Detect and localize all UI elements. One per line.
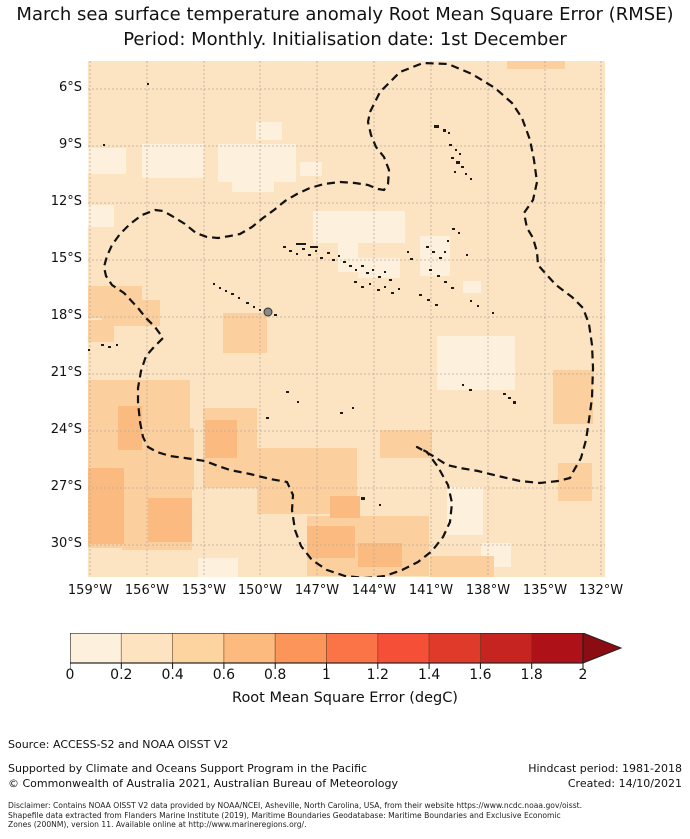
rmse-patch — [358, 543, 402, 567]
island-speck — [286, 391, 289, 393]
island-speck — [369, 283, 371, 285]
island-speck — [302, 248, 305, 250]
island-speck — [320, 257, 323, 259]
colorbar-tick-label: 0.8 — [264, 667, 286, 683]
colorbar-tick-label: 0.2 — [110, 667, 132, 683]
colorbar-segment — [378, 633, 429, 663]
rmse-patch — [148, 498, 192, 542]
colorbar-tick-label: 1 — [322, 667, 331, 683]
island-speck — [377, 289, 380, 291]
island-speck — [508, 397, 511, 399]
rmse-patch — [218, 144, 296, 182]
colorbar-tick-label: 0.4 — [161, 667, 183, 683]
island-speck — [327, 252, 330, 254]
rmse-patch — [313, 211, 405, 243]
island-speck — [231, 293, 234, 295]
rmse-patch — [88, 320, 114, 342]
rmse-patch — [430, 556, 494, 577]
colorbar-segment — [121, 633, 172, 663]
island-speck — [259, 309, 261, 311]
disclaimer-line: Disclaimer: Contains NOAA OISST V2 data … — [8, 801, 582, 811]
island-speck — [308, 254, 311, 256]
island-speck — [219, 287, 221, 289]
island-speck — [355, 269, 357, 271]
colorbar-segment — [480, 633, 531, 663]
island-speck — [434, 125, 439, 128]
x-tick-label: 147°W — [295, 583, 339, 598]
island-speck — [253, 306, 255, 308]
island-speck — [449, 144, 452, 146]
island-speck — [378, 276, 381, 278]
island-speck — [439, 257, 442, 259]
island-speck — [419, 294, 422, 296]
island-speck — [452, 228, 455, 230]
colorbar-tick-label: 2 — [579, 667, 588, 683]
island-speck — [116, 344, 118, 346]
y-tick-label: 18°S — [0, 308, 82, 323]
island-speck — [361, 497, 365, 500]
island-speck — [332, 259, 335, 261]
x-tick-label: 135°W — [523, 583, 567, 598]
island-speck — [437, 275, 440, 277]
colorbar-segment — [429, 633, 480, 663]
island-speck — [513, 401, 516, 404]
island-speck — [465, 173, 467, 175]
island-speck — [372, 269, 374, 271]
island-speck — [296, 243, 306, 245]
x-tick-label: 138°W — [466, 583, 510, 598]
island-speck — [310, 246, 318, 248]
disclaimer-line: Shapefile data extracted from Flanders M… — [8, 811, 582, 821]
hindcast-period-text: Hindcast period: 1981-2018 — [528, 762, 682, 775]
y-tick-label: 12°S — [0, 194, 82, 209]
colorbar-tick-label: 1.2 — [367, 667, 389, 683]
island-speck — [147, 83, 149, 85]
created-date-text: Created: 14/10/2021 — [568, 777, 682, 790]
island-speck — [427, 299, 430, 301]
island-speck — [432, 251, 435, 253]
island-speck — [225, 290, 227, 292]
map-canvas — [88, 61, 605, 577]
island-speck — [410, 258, 413, 260]
island-speck — [384, 271, 386, 273]
island-speck — [349, 265, 352, 267]
x-tick-label: 132°W — [579, 583, 623, 598]
island-speck — [444, 281, 447, 283]
x-tick-label: 153°W — [182, 583, 226, 598]
x-tick-label: 156°W — [125, 583, 169, 598]
colorbar-segment — [275, 633, 326, 663]
colorbar-segment — [327, 633, 378, 663]
colorbar-segment — [224, 633, 275, 663]
y-tick-label: 15°S — [0, 251, 82, 266]
rmse-patch — [553, 370, 593, 424]
disclaimer-text: Disclaimer: Contains NOAA OISST V2 data … — [8, 801, 582, 830]
rmse-patch — [142, 144, 204, 178]
island-speck — [88, 349, 90, 351]
rmse-patch — [232, 180, 274, 192]
disclaimer-line: Zones (200NM), version 11. Available onl… — [8, 820, 582, 830]
island-speck — [366, 272, 369, 274]
island-speck — [466, 254, 468, 256]
colorbar-segment — [173, 633, 224, 663]
island-speck — [456, 161, 460, 164]
island-speck — [451, 287, 454, 289]
island-speck — [444, 251, 446, 253]
island-speck — [492, 312, 494, 314]
rmse-patch — [307, 526, 355, 558]
island-speck — [297, 401, 299, 403]
rmse-patch — [88, 148, 126, 174]
figure-title-line-2: Period: Monthly. Initialisation date: 1s… — [123, 29, 567, 50]
island-speck — [352, 407, 354, 409]
colorbar-label: Root Mean Square Error (degC) — [232, 690, 458, 706]
tahiti-island — [264, 308, 272, 316]
island-speck — [238, 297, 240, 299]
island-speck — [503, 393, 506, 395]
rmse-patch — [88, 205, 114, 227]
x-tick-label: 141°W — [409, 583, 453, 598]
island-speck — [340, 412, 343, 414]
island-speck — [246, 302, 249, 304]
rmse-patch — [380, 430, 432, 458]
island-speck — [407, 251, 409, 253]
island-speck — [391, 292, 394, 294]
rmse-patch — [463, 281, 481, 293]
island-speck — [274, 314, 277, 316]
island-speck — [266, 417, 269, 419]
island-speck — [461, 166, 464, 168]
island-speck — [469, 389, 472, 391]
island-speck — [361, 286, 364, 288]
y-tick-label: 24°S — [0, 422, 82, 437]
x-tick-label: 159°W — [68, 583, 112, 598]
island-speck — [289, 250, 292, 252]
island-speck — [426, 246, 429, 248]
island-speck — [354, 281, 357, 283]
rmse-patch — [420, 236, 450, 276]
island-speck — [451, 157, 454, 159]
colorbar-over-arrow — [583, 633, 621, 663]
figure-title-line-1: March sea surface temperature anomaly Ro… — [16, 4, 673, 25]
source-text: Source: ACCESS-S2 and NOAA OISST V2 — [8, 738, 228, 751]
y-tick-label: 6°S — [0, 80, 82, 95]
rmse-patch — [338, 240, 358, 272]
island-speck — [384, 286, 386, 288]
island-speck — [462, 384, 464, 386]
island-speck — [283, 246, 286, 248]
island-speck — [213, 283, 215, 285]
island-speck — [458, 232, 460, 234]
island-speck — [470, 178, 472, 180]
rmse-patch — [330, 496, 360, 518]
y-tick-label: 27°S — [0, 479, 82, 494]
island-speck — [361, 265, 364, 267]
y-tick-label: 9°S — [0, 137, 82, 152]
island-speck — [103, 144, 105, 146]
island-speck — [429, 269, 432, 271]
rmse-patch — [358, 258, 400, 278]
island-speck — [379, 504, 381, 506]
rmse-patch — [205, 420, 237, 458]
colorbar-tick-label: 1.4 — [418, 667, 440, 683]
rmse-patch — [88, 468, 124, 544]
island-speck — [296, 253, 298, 255]
y-tick-label: 30°S — [0, 536, 82, 551]
island-speck — [447, 240, 449, 242]
colorbar-tick-label: 1.8 — [521, 667, 543, 683]
rmse-patch — [300, 162, 322, 176]
colorbar-tick-label: 0.6 — [213, 667, 235, 683]
colorbar-tick-label: 1.6 — [469, 667, 491, 683]
island-speck — [315, 250, 317, 252]
rmse-patch — [447, 487, 483, 535]
island-speck — [389, 279, 392, 281]
island-speck — [101, 344, 104, 346]
island-speck — [443, 129, 446, 132]
colorbar-segment — [532, 633, 583, 663]
island-speck — [455, 149, 457, 151]
x-tick-label: 150°W — [238, 583, 282, 598]
island-speck — [343, 261, 346, 263]
supported-text: Supported by Climate and Oceans Support … — [8, 762, 367, 775]
copyright-text: © Commonwealth of Australia 2021, Austra… — [8, 777, 398, 790]
figure-frame: March sea surface temperature anomaly Ro… — [0, 0, 690, 839]
colorbar — [70, 633, 623, 671]
island-speck — [477, 305, 479, 307]
island-speck — [459, 153, 461, 155]
rmse-patch — [507, 61, 565, 69]
x-tick-label: 144°W — [352, 583, 396, 598]
island-speck — [398, 288, 400, 290]
island-speck — [108, 346, 111, 348]
y-tick-label: 21°S — [0, 365, 82, 380]
island-speck — [454, 171, 456, 173]
colorbar-segment — [70, 633, 121, 663]
colorbar-tick-label: 0 — [66, 667, 75, 683]
island-speck — [338, 255, 340, 257]
island-speck — [470, 300, 472, 302]
rmse-patch — [437, 336, 515, 390]
colorbar-svg — [70, 633, 623, 671]
island-speck — [448, 132, 450, 134]
island-speck — [435, 304, 438, 306]
map-svg — [88, 61, 605, 577]
